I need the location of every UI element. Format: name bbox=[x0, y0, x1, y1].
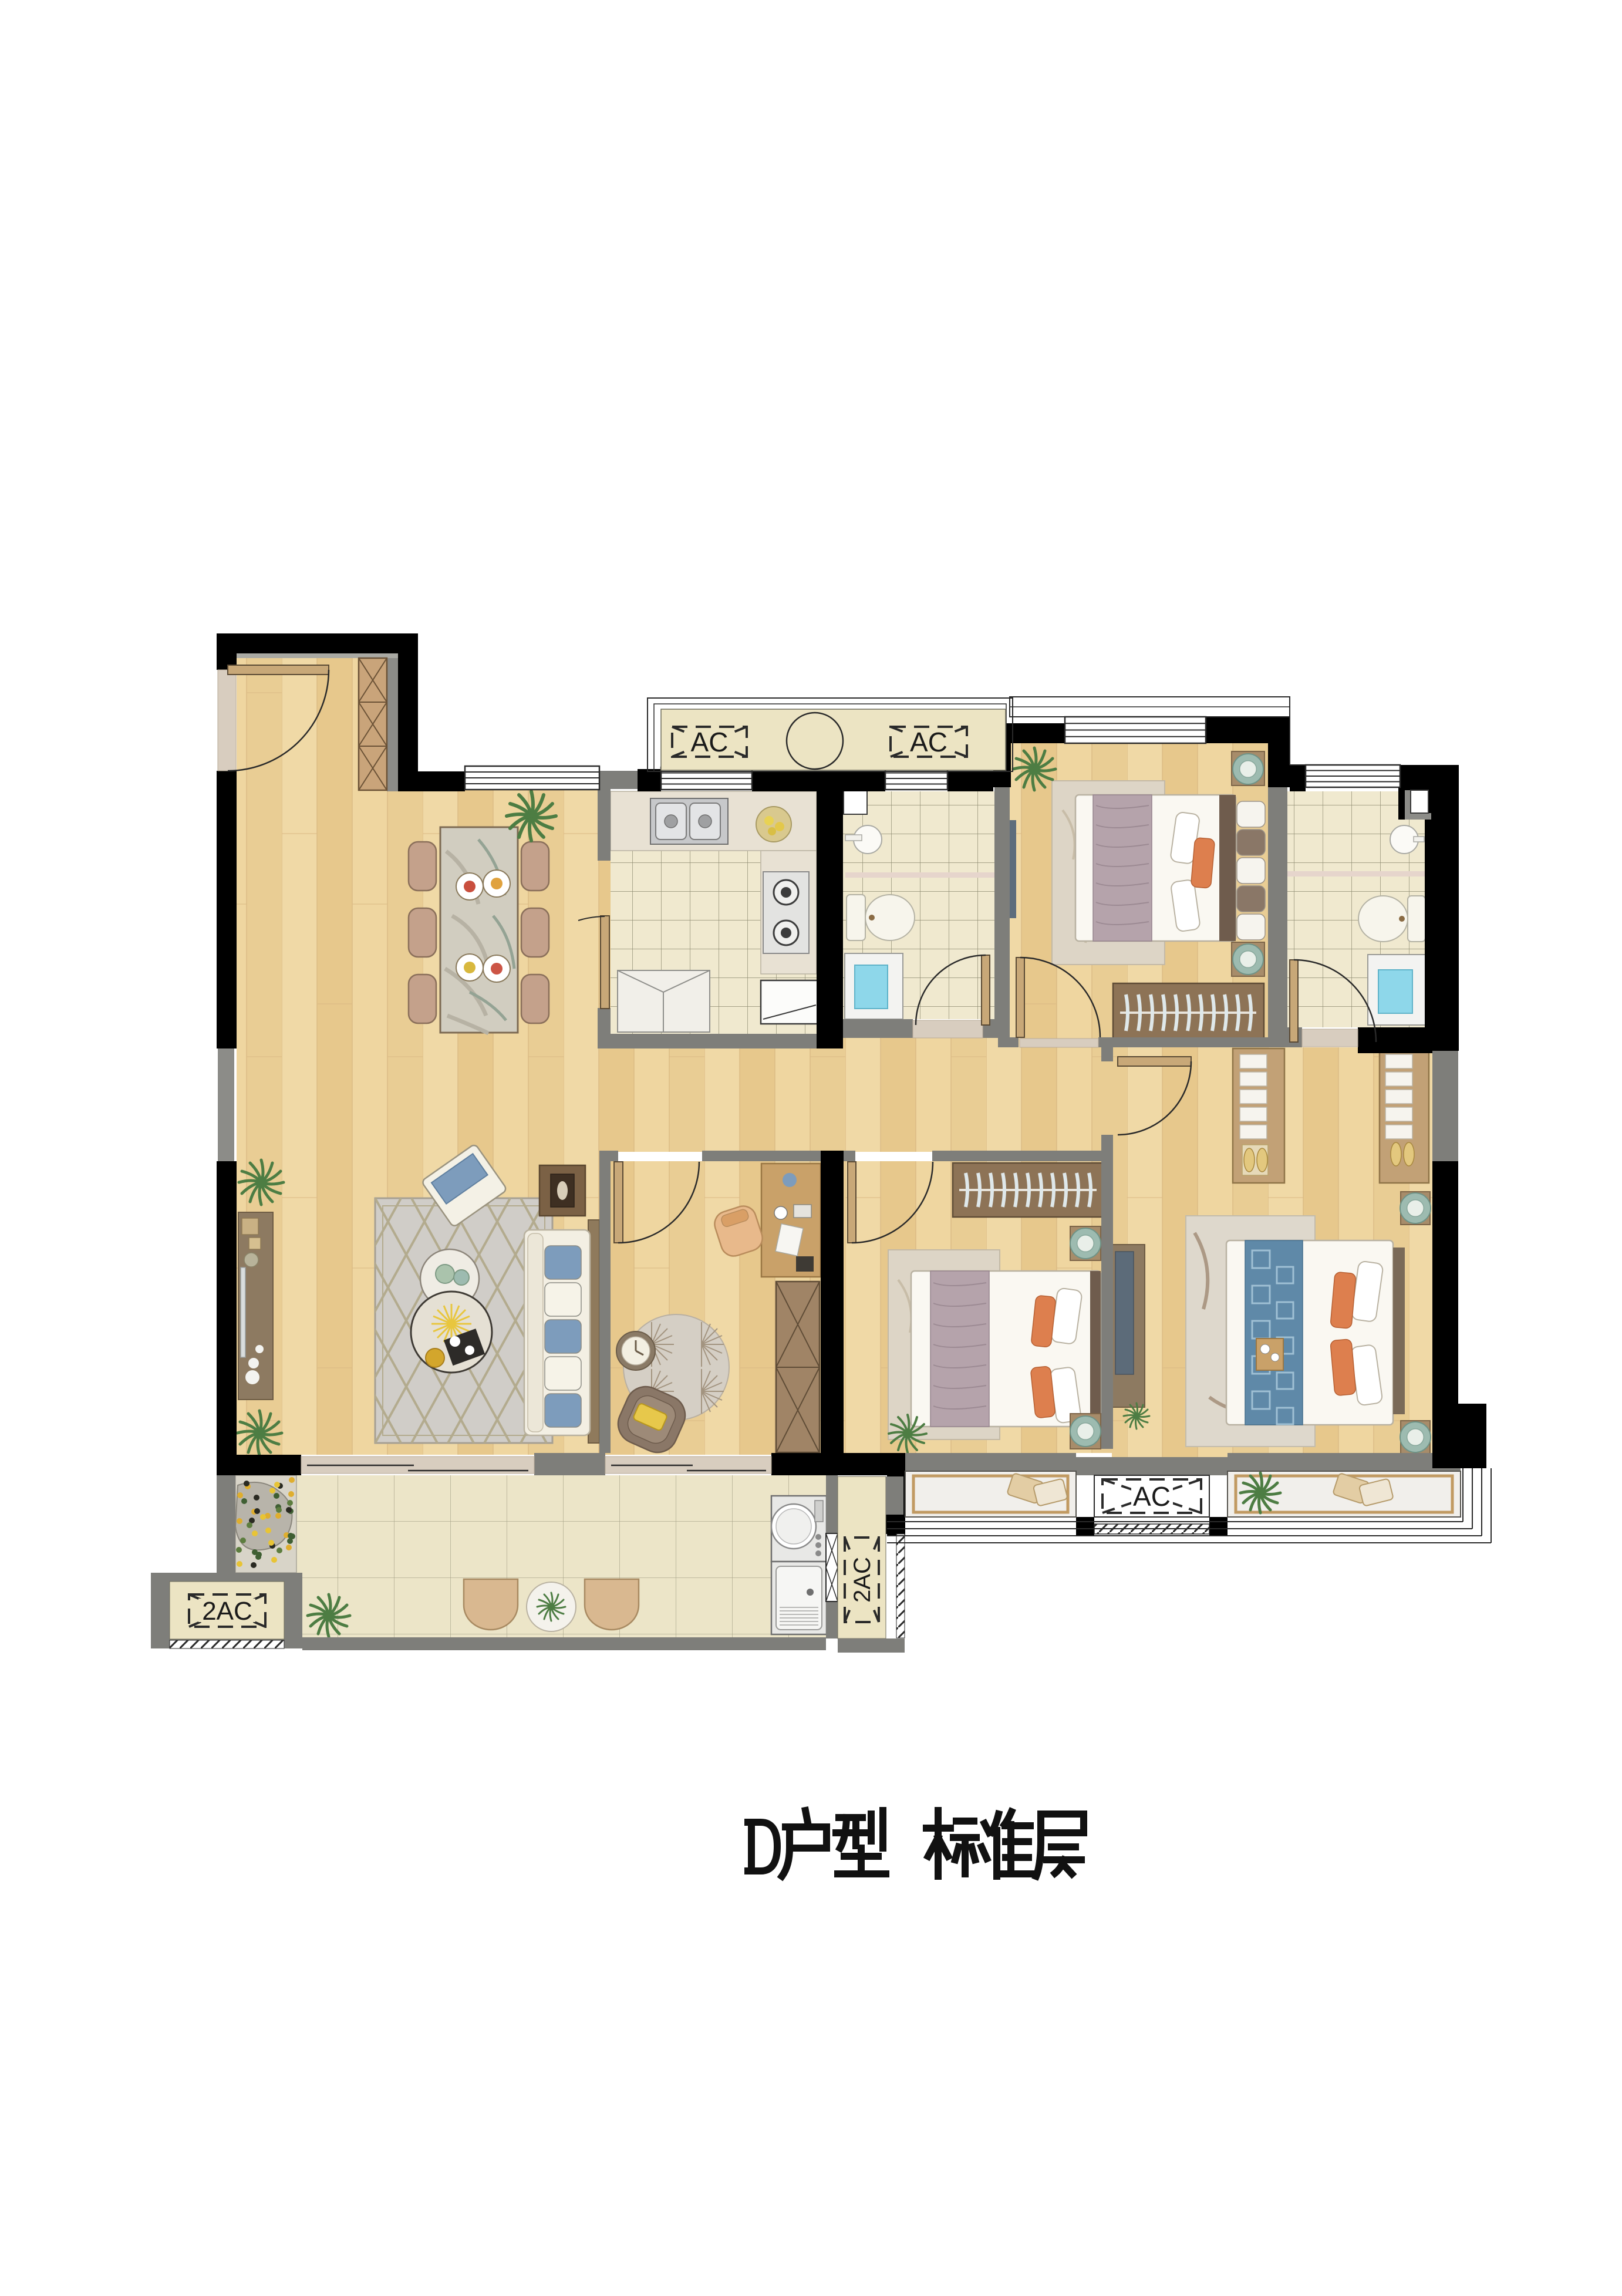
svg-text:AC: AC bbox=[910, 727, 947, 757]
svg-text:AC: AC bbox=[1133, 1481, 1171, 1512]
svg-text:2AC: 2AC bbox=[849, 1557, 875, 1603]
svg-text:AC: AC bbox=[691, 727, 729, 757]
svg-text:2AC: 2AC bbox=[202, 1597, 252, 1626]
